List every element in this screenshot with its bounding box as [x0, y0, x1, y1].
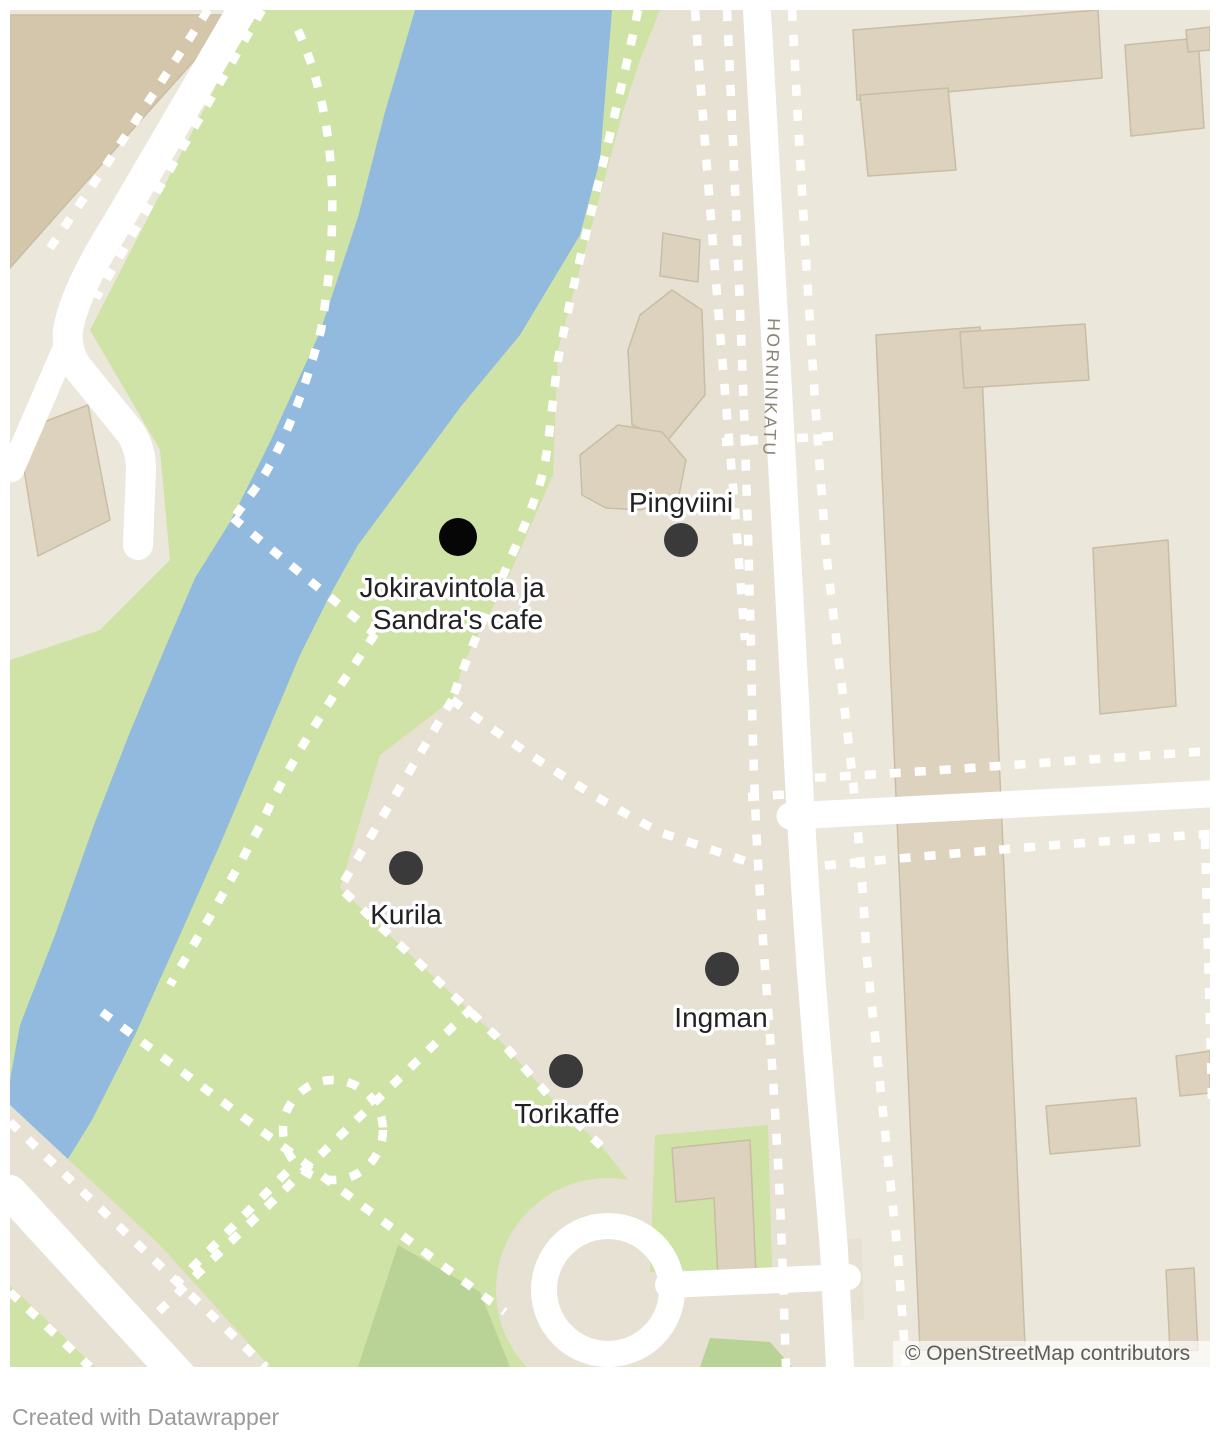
marker-label: Pingviini: [629, 487, 733, 518]
marker-dot[interactable]: [549, 1054, 583, 1088]
marker-label: Torikaffe: [514, 1098, 619, 1129]
marker-dot[interactable]: [439, 518, 477, 556]
locator-map: HORNINKATU Jokiravintola ja Sandra's caf…: [10, 10, 1210, 1367]
building: [1046, 1098, 1140, 1154]
osm-attribution[interactable]: © OpenStreetMap contributors: [893, 1341, 1210, 1367]
marker-label: Ingman: [674, 1002, 767, 1033]
building: [960, 324, 1089, 388]
marker-label: Kurila: [370, 899, 442, 930]
marker-label-line: Sandra's cafe: [373, 604, 543, 635]
marker-dot[interactable]: [389, 851, 423, 885]
marker-label: Jokiravintola ja Sandra's cafe: [360, 572, 553, 635]
datawrapper-map-page: HORNINKATU Jokiravintola ja Sandra's caf…: [0, 0, 1220, 1444]
building: [1166, 1268, 1198, 1352]
building: [660, 233, 700, 282]
map-canvas[interactable]: HORNINKATU Jokiravintola ja Sandra's caf…: [10, 10, 1210, 1367]
building: [860, 88, 956, 176]
marker-label-line: Jokiravintola ja: [360, 572, 546, 603]
marker-dot[interactable]: [705, 952, 739, 986]
building: [1093, 540, 1176, 714]
datawrapper-credit[interactable]: Created with Datawrapper: [12, 1404, 279, 1431]
building: [1125, 38, 1204, 136]
building: [1186, 27, 1210, 52]
roundabout-spur: [668, 1277, 848, 1285]
marker-dot[interactable]: [664, 523, 698, 557]
building: [1176, 1051, 1210, 1096]
